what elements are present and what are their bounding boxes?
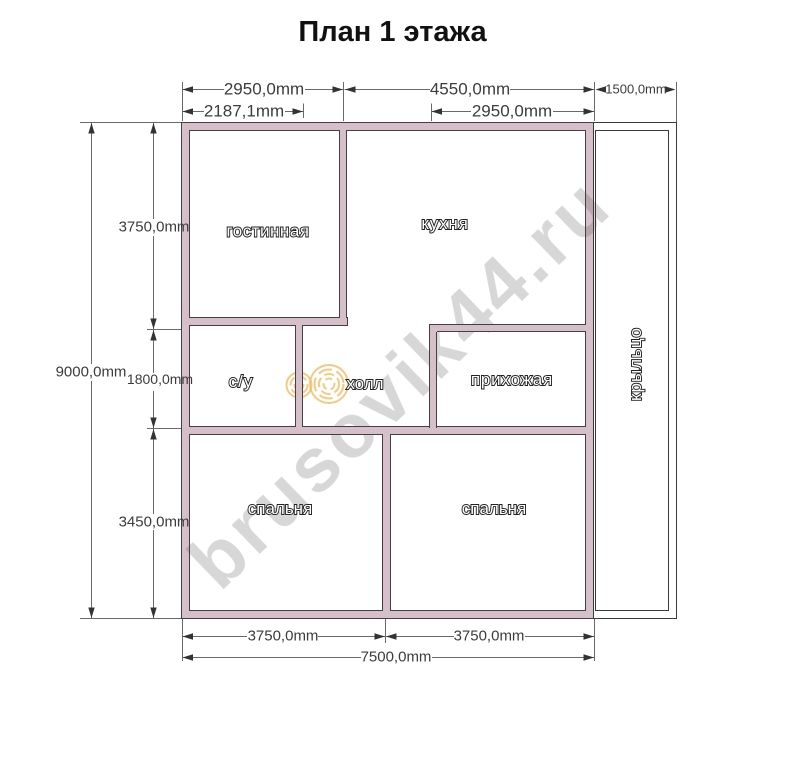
svg-text:гостинная: гостинная: [226, 222, 309, 241]
svg-text:с/у: с/у: [229, 372, 254, 391]
svg-text:холл: холл: [346, 374, 383, 393]
svg-text:кухня: кухня: [421, 214, 468, 233]
svg-text:спальня: спальня: [462, 499, 527, 518]
svg-text:прихожая: прихожая: [471, 370, 553, 389]
svg-text:спальня: спальня: [248, 499, 313, 518]
svg-text:крыльцо: крыльцо: [626, 327, 645, 401]
